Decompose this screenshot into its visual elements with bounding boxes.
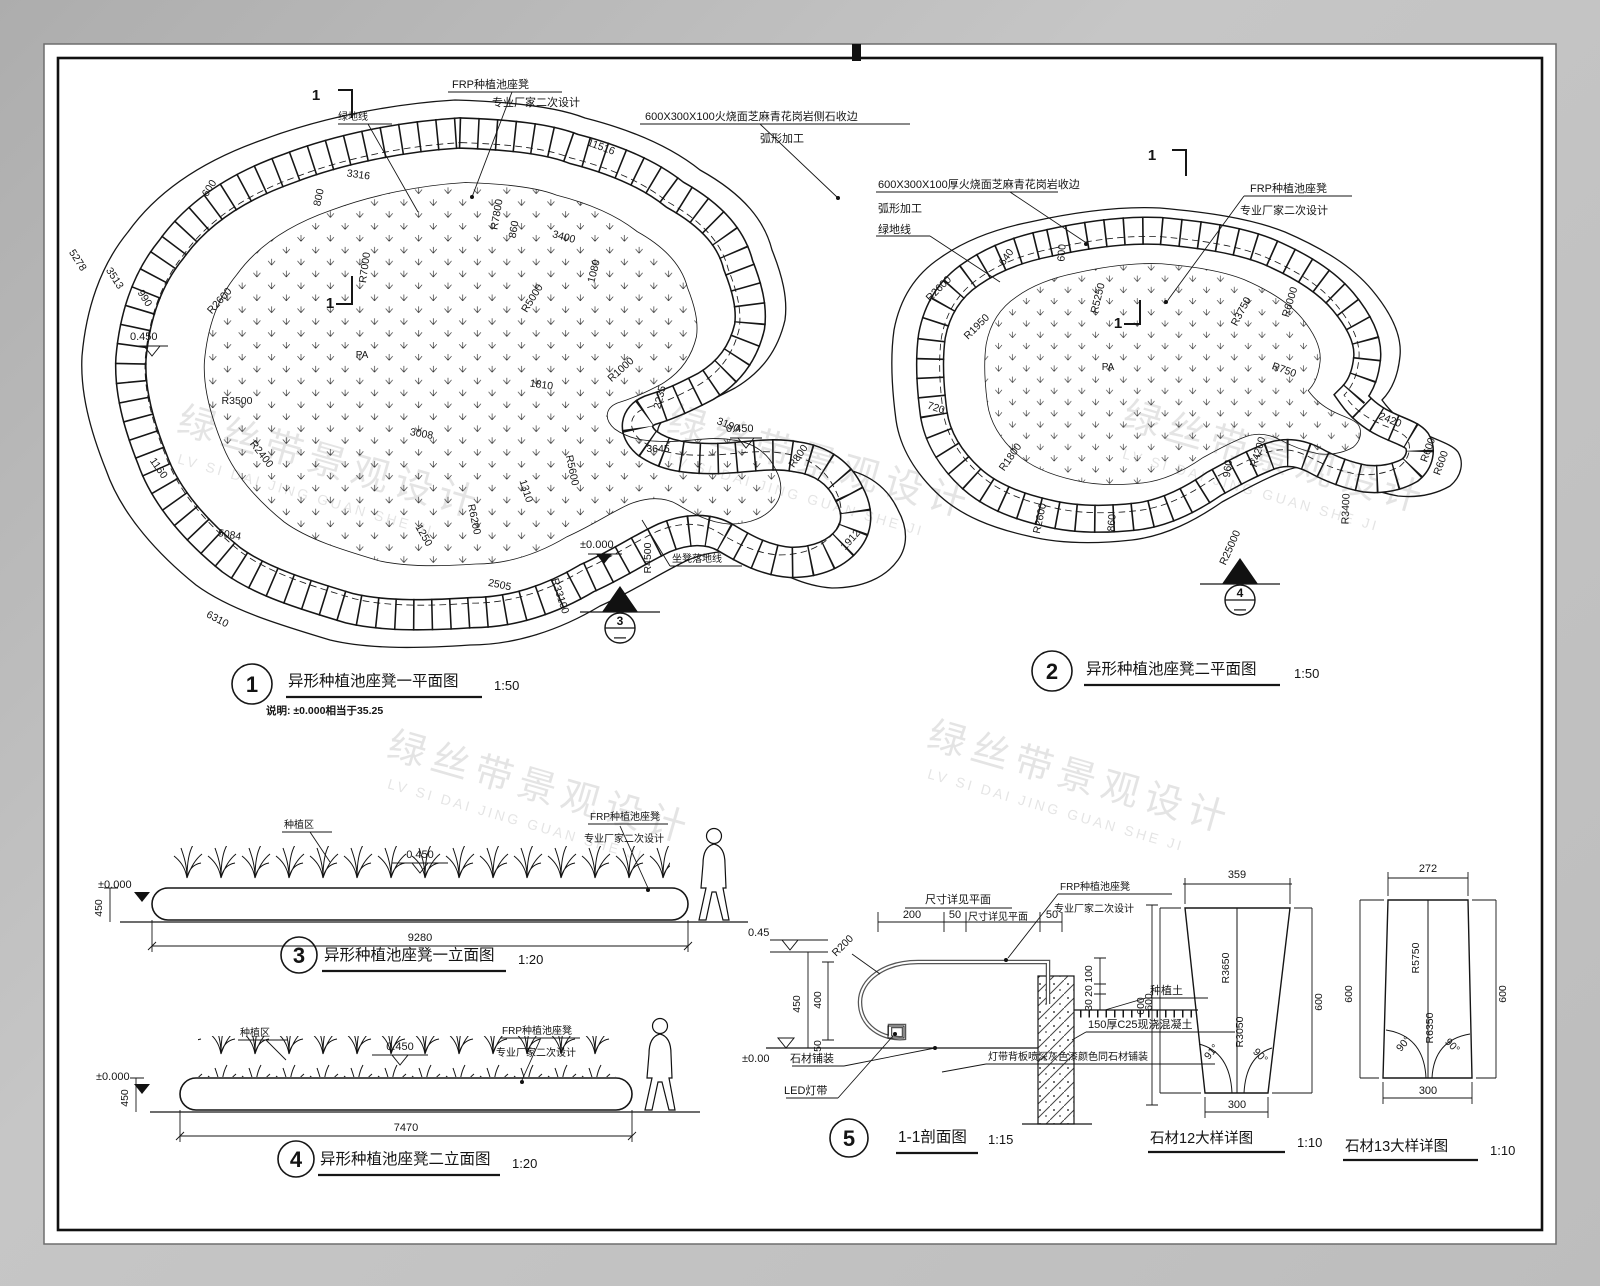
callout-text: 灯带背板喷深灰色漆颜色同石材铺装 bbox=[988, 1050, 1148, 1063]
svg-text:0.450: 0.450 bbox=[130, 331, 158, 343]
dim-label: 50 bbox=[949, 909, 961, 921]
svg-text:600: 600 bbox=[1313, 993, 1325, 1011]
scale-label: 1:20 bbox=[512, 1156, 537, 1171]
section-concrete-wall bbox=[1038, 976, 1074, 1124]
callout-text: 坐凳落地线 bbox=[672, 552, 722, 565]
scale-label: 1:50 bbox=[494, 678, 519, 693]
scale-label: 1:10 bbox=[1297, 1135, 1322, 1150]
callout-text: FRP种植池座凳 bbox=[502, 1024, 572, 1037]
view-title: 异形种植池座凳二平面图 bbox=[1086, 660, 1257, 678]
svg-text:R6350: R6350 bbox=[1424, 1012, 1436, 1043]
dim-label: 300 bbox=[1228, 1099, 1246, 1111]
planting-area-code: PA bbox=[356, 350, 369, 361]
svg-text:R5750: R5750 bbox=[1410, 942, 1422, 973]
svg-text:20: 20 bbox=[1083, 985, 1095, 997]
callout-text: LED灯带 bbox=[784, 1084, 827, 1097]
svg-text:600: 600 bbox=[1343, 985, 1355, 1003]
view-title: 1-1剖面图 bbox=[898, 1128, 967, 1146]
svg-text:R4500: R4500 bbox=[642, 542, 654, 573]
dim-label: 200 bbox=[903, 909, 921, 921]
callout-text: 弧形加工 bbox=[760, 131, 804, 145]
svg-text:—: — bbox=[1234, 602, 1246, 616]
svg-text:450: 450 bbox=[93, 899, 105, 917]
view-number: 5 bbox=[843, 1126, 855, 1151]
callout-text: 专业厂家二次设计 bbox=[496, 1046, 576, 1059]
view-title: 异形种植池座凳二立面图 bbox=[320, 1150, 491, 1168]
planting-area-code: PA bbox=[1102, 362, 1115, 373]
view-number: 1 bbox=[246, 672, 258, 697]
dim-label: 359 bbox=[1228, 869, 1246, 881]
section-cut-label: 1 bbox=[1114, 315, 1122, 332]
callout-text: 石材铺装 bbox=[790, 1051, 834, 1065]
view-title: 异形种植池座凳一立面图 bbox=[324, 946, 495, 964]
svg-text:600: 600 bbox=[1497, 985, 1509, 1003]
plan1-note: 说明: ±0.000相当于35.25 bbox=[266, 704, 383, 717]
svg-text:30: 30 bbox=[1083, 999, 1095, 1011]
view-title: 石材12大样详图 bbox=[1150, 1130, 1253, 1147]
scale-label: 1:50 bbox=[1294, 666, 1319, 681]
svg-text:860: 860 bbox=[1105, 513, 1118, 531]
svg-text:R3650: R3650 bbox=[1220, 952, 1232, 983]
svg-text:3: 3 bbox=[617, 614, 624, 628]
dim-label: 7470 bbox=[394, 1122, 418, 1134]
svg-text:3645: 3645 bbox=[646, 443, 670, 455]
callout-text: 弧形加工 bbox=[878, 201, 922, 215]
callout-text: FRP种植池座凳 bbox=[1060, 880, 1130, 893]
fold-mark bbox=[852, 44, 861, 61]
ref-note: 尺寸详见平面 bbox=[968, 910, 1028, 923]
callout-text: FRP种植池座凳 bbox=[1250, 181, 1327, 195]
view-title: 异形种植池座凳一平面图 bbox=[288, 672, 459, 690]
dim-label: 300 bbox=[1419, 1085, 1437, 1097]
callout-text: 绿地线 bbox=[878, 222, 911, 236]
svg-text:450: 450 bbox=[791, 995, 803, 1013]
svg-text:50: 50 bbox=[812, 1040, 824, 1052]
callout-text: 专业厂家二次设计 bbox=[492, 95, 580, 109]
scale-label: 1:10 bbox=[1490, 1143, 1515, 1158]
scale-label: 1:20 bbox=[518, 952, 543, 967]
callout-text: 专业厂家二次设计 bbox=[1240, 203, 1328, 217]
level-label: 0.450 bbox=[406, 849, 434, 861]
view-number: 2 bbox=[1046, 659, 1058, 684]
callout-text: 绿地线 bbox=[338, 110, 368, 123]
level-label: ±0.000 bbox=[98, 879, 132, 891]
svg-text:100: 100 bbox=[1083, 965, 1095, 983]
level-label: ±0.00 bbox=[742, 1053, 769, 1065]
callout-text: 150厚C25现浇混凝土 bbox=[1088, 1017, 1193, 1031]
svg-text:±0.000: ±0.000 bbox=[580, 539, 614, 551]
svg-text:450: 450 bbox=[119, 1089, 131, 1107]
callout-text: 600X300X100厚火烧面芝麻青花岗岩收边 bbox=[878, 177, 1080, 191]
elev2-bench-slab bbox=[180, 1078, 632, 1110]
svg-text:600: 600 bbox=[1055, 243, 1068, 261]
svg-text:R3500: R3500 bbox=[222, 395, 253, 407]
elev1-bench-slab bbox=[152, 888, 688, 920]
level-label: ±0.000 bbox=[96, 1071, 130, 1083]
section-cut-label: 1 bbox=[312, 87, 320, 104]
screenshot-page: PA 1 1 FRP种植池座凳 专业厂家二次设计 600X300X100火烧面芝… bbox=[0, 0, 1600, 1286]
section-cut-label: 1 bbox=[326, 295, 334, 312]
callout-text: 种植区 bbox=[284, 818, 314, 831]
callout-text: 600X300X100火烧面芝麻青花岗岩侧石收边 bbox=[645, 109, 858, 123]
ref-note: 尺寸详见平面 bbox=[925, 892, 991, 906]
svg-text:400: 400 bbox=[812, 991, 824, 1009]
callout-text: 种植区 bbox=[240, 1026, 270, 1039]
view-number: 4 bbox=[290, 1147, 303, 1172]
level-label: 0.450 bbox=[386, 1041, 414, 1053]
callout-text: 专业厂家二次设计 bbox=[1054, 902, 1134, 915]
view-number: 3 bbox=[293, 943, 305, 968]
section-cut-label: 1 bbox=[1148, 147, 1156, 164]
svg-text:R3050: R3050 bbox=[1234, 1016, 1246, 1047]
dim-label: 272 bbox=[1419, 863, 1437, 875]
level-label: 0.45 bbox=[748, 927, 769, 939]
svg-text:—: — bbox=[614, 630, 626, 644]
view-title: 石材13大样详图 bbox=[1345, 1138, 1448, 1155]
svg-text:600: 600 bbox=[1143, 993, 1155, 1011]
drawing-sheet: PA 1 1 FRP种植池座凳 专业厂家二次设计 600X300X100火烧面芝… bbox=[0, 0, 1600, 1286]
scale-label: 1:15 bbox=[988, 1132, 1013, 1147]
callout-text: FRP种植池座凳 bbox=[452, 77, 529, 91]
svg-text:4: 4 bbox=[1237, 586, 1244, 600]
dim-label: 9280 bbox=[408, 932, 432, 944]
